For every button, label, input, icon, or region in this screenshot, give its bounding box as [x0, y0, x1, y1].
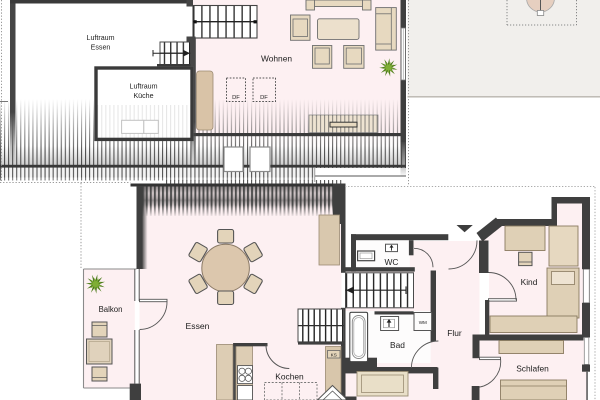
svg-text:Luftraum: Luftraum	[87, 34, 115, 42]
svg-text:WM: WM	[419, 320, 427, 325]
svg-text:Kochen: Kochen	[275, 372, 304, 382]
svg-text:Luftraum: Luftraum	[130, 83, 158, 91]
svg-text:DF: DF	[260, 95, 268, 101]
svg-text:Kind: Kind	[521, 277, 538, 287]
svg-text:Balkon: Balkon	[99, 305, 123, 314]
svg-text:Bad: Bad	[390, 340, 405, 350]
svg-text:DF: DF	[232, 95, 240, 101]
svg-text:Schlafen: Schlafen	[516, 364, 549, 374]
svg-text:KS: KS	[331, 353, 337, 358]
svg-text:WC: WC	[385, 257, 399, 267]
svg-text:Flur: Flur	[447, 328, 462, 338]
svg-text:Essen: Essen	[91, 44, 111, 52]
svg-text:Küche: Küche	[133, 92, 153, 100]
svg-text:Wohnen: Wohnen	[261, 54, 292, 64]
svg-text:Essen: Essen	[186, 321, 210, 331]
